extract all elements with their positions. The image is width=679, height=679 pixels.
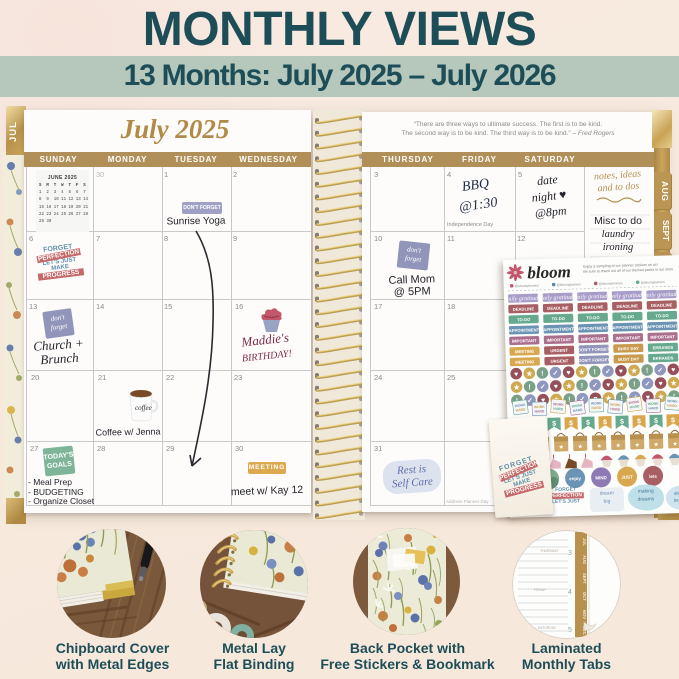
svg-text:daily gratitude: daily gratitude	[574, 294, 610, 301]
svg-text:!: !	[594, 369, 597, 376]
svg-text:HARD: HARD	[648, 406, 658, 410]
svg-text:TO-DO: TO-DO	[517, 317, 531, 322]
svg-text:SEPT: SEPT	[582, 573, 587, 584]
svg-text:29: 29	[166, 444, 174, 453]
svg-text:★: ★	[566, 382, 573, 390]
svg-text:DEADLINE: DEADLINE	[513, 306, 535, 312]
svg-text:20: 20	[31, 373, 39, 382]
svg-text:♥: ♥	[658, 381, 662, 388]
svg-text:HARD: HARD	[534, 409, 544, 413]
svg-text:HARD: HARD	[667, 403, 678, 408]
svg-text:★: ★	[578, 368, 585, 376]
svg-text:IMPORTANT: IMPORTANT	[616, 335, 641, 341]
svg-text:URGENT: URGENT	[550, 348, 568, 354]
svg-text:daily gratitude: daily gratitude	[644, 292, 679, 299]
svg-text:10: 10	[374, 234, 382, 243]
svg-text:OCT: OCT	[582, 592, 587, 601]
svg-text:!: !	[528, 384, 531, 391]
svg-text:FRIDAY: FRIDAY	[534, 588, 547, 592]
svg-text:@bloomplanners: @bloomplanners	[641, 280, 666, 285]
svg-text:★: ★	[631, 367, 638, 375]
svg-text:★: ★	[670, 379, 677, 387]
svg-text:25: 25	[447, 373, 455, 382]
svg-text:TO-DO: TO-DO	[551, 316, 565, 321]
svg-text:8: 8	[164, 234, 168, 243]
svg-text:★: ★	[513, 384, 520, 392]
svg-text:coffee: coffee	[135, 404, 152, 412]
svg-text:★: ★	[634, 442, 640, 449]
svg-text:AUG: AUG	[582, 555, 587, 564]
svg-text:7: 7	[96, 234, 100, 243]
svg-text:4: 4	[447, 170, 451, 179]
svg-text:MEETING: MEETING	[515, 359, 534, 365]
svg-text:TO-DO: TO-DO	[621, 314, 635, 319]
svg-text:MIND: MIND	[595, 475, 607, 480]
svg-text:$: $	[603, 419, 607, 426]
svg-text:24: 24	[374, 373, 382, 382]
svg-text:daily gratitude: daily gratitude	[540, 295, 576, 302]
svg-text:31: 31	[374, 444, 382, 453]
svg-text:17: 17	[374, 302, 382, 311]
svg-text:★: ★	[618, 381, 625, 389]
svg-text:DON'T FORGET: DON'T FORGET	[578, 347, 610, 353]
svg-text:✓: ✓	[540, 384, 546, 391]
svg-text:16: 16	[235, 302, 243, 311]
svg-text:2: 2	[233, 170, 237, 179]
svg-text:$: $	[671, 417, 675, 424]
svg-text:TO-DO: TO-DO	[655, 313, 669, 318]
svg-text:ERRANDS: ERRANDS	[652, 345, 673, 351]
svg-text:NOV: NOV	[582, 610, 587, 619]
svg-text:DEADLINE: DEADLINE	[616, 303, 638, 309]
svg-text:♥: ♥	[671, 367, 675, 374]
svg-text:22: 22	[166, 373, 174, 382]
svg-text:✓: ✓	[592, 382, 598, 389]
svg-text:ERRANDS: ERRANDS	[653, 355, 674, 361]
svg-text:✓: ✓	[552, 370, 558, 377]
svg-text:$: $	[637, 418, 641, 425]
svg-text:TO-DO: TO-DO	[586, 315, 600, 320]
svg-text:HARD: HARD	[591, 406, 601, 410]
svg-text:30: 30	[235, 444, 243, 453]
svg-text:@bloomplanners: @bloomplanners	[515, 283, 540, 288]
svg-text:★: ★	[615, 442, 621, 449]
svg-text:bloom: bloom	[527, 262, 571, 282]
svg-text:HARD: HARD	[553, 407, 564, 412]
svg-text:BUSY DAY: BUSY DAY	[618, 356, 640, 362]
svg-text:MEETING: MEETING	[515, 349, 534, 355]
svg-text:URGENT: URGENT	[551, 358, 569, 364]
svg-text:DON'T FORGET: DON'T FORGET	[578, 357, 610, 363]
svg-text:$: $	[654, 418, 658, 425]
svg-text:JUST: JUST	[621, 474, 633, 479]
svg-text:♥: ♥	[619, 368, 623, 375]
svg-text:$: $	[620, 419, 624, 426]
svg-text:4: 4	[568, 589, 572, 596]
svg-text:12: 12	[517, 234, 525, 243]
svg-text:@bloomplanners: @bloomplanners	[599, 281, 624, 286]
svg-text:27: 27	[30, 444, 38, 453]
svg-text:5: 5	[568, 627, 572, 634]
svg-text:21: 21	[98, 373, 106, 382]
svg-text:13: 13	[29, 302, 37, 311]
svg-text:✓: ✓	[657, 367, 663, 374]
svg-text:$: $	[586, 420, 590, 427]
svg-text:$: $	[569, 420, 573, 427]
svg-text:✓: ✓	[644, 381, 650, 388]
svg-text:IMPORTANT: IMPORTANT	[512, 338, 537, 344]
svg-text:!: !	[646, 368, 649, 375]
svg-text:!: !	[581, 383, 584, 390]
svg-text:daily gratitude: daily gratitude	[505, 296, 541, 303]
svg-text:♥: ♥	[606, 382, 610, 389]
svg-text:DEADLINE: DEADLINE	[547, 305, 569, 311]
svg-text:DEADLINE: DEADLINE	[582, 304, 604, 310]
svg-text:★: ★	[558, 444, 564, 451]
svg-text:THURSDAY: THURSDAY	[540, 549, 559, 553]
svg-text:♥: ♥	[566, 370, 570, 377]
svg-text:11: 11	[447, 234, 455, 243]
svg-text:!: !	[633, 381, 636, 388]
svg-text:1: 1	[164, 170, 168, 179]
svg-text:JUL: JUL	[582, 538, 587, 546]
svg-text:daily gratitude: daily gratitude	[609, 293, 645, 300]
svg-text:SATURDAY: SATURDAY	[538, 626, 557, 630]
svg-text:9: 9	[233, 234, 237, 243]
svg-text:14: 14	[96, 302, 104, 311]
svg-text:BUSY DAY: BUSY DAY	[618, 346, 640, 352]
svg-text:6: 6	[29, 234, 33, 243]
svg-text:APPOINTMENT: APPOINTMENT	[612, 324, 643, 330]
svg-text:15: 15	[164, 302, 172, 311]
svg-text:DEADLINE: DEADLINE	[651, 302, 673, 308]
svg-text:IMPORTANT: IMPORTANT	[546, 337, 571, 343]
svg-text:★: ★	[596, 443, 602, 450]
svg-text:30: 30	[96, 170, 104, 179]
svg-text:HARD: HARD	[610, 407, 621, 412]
svg-text:23: 23	[234, 373, 242, 382]
svg-text:APPOINTMENT: APPOINTMENT	[578, 325, 609, 331]
svg-text:3: 3	[374, 170, 378, 179]
svg-text:28: 28	[97, 444, 105, 453]
svg-text:♥: ♥	[554, 384, 558, 391]
svg-text:IMPORTANT: IMPORTANT	[650, 334, 675, 340]
svg-text:IMPORTANT: IMPORTANT	[581, 336, 606, 342]
svg-text:APPOINTMENT: APPOINTMENT	[509, 327, 540, 333]
svg-text:★: ★	[672, 441, 678, 448]
svg-text:18: 18	[447, 302, 455, 311]
svg-text:lets: lets	[649, 474, 657, 479]
svg-text:@bloomplanners: @bloomplanners	[557, 282, 582, 287]
svg-text:✓: ✓	[605, 369, 611, 376]
svg-text:APPOINTMENT: APPOINTMENT	[647, 323, 678, 329]
svg-text:★: ★	[653, 441, 659, 448]
svg-text:♥: ♥	[514, 371, 518, 378]
svg-text:!: !	[541, 371, 544, 378]
svg-text:Independence Day: Independence Day	[447, 222, 493, 228]
svg-text:★: ★	[526, 370, 533, 378]
svg-text:$: $	[552, 421, 556, 428]
svg-text:enjoy: enjoy	[569, 476, 581, 481]
svg-text:★: ★	[577, 443, 583, 450]
svg-text:APPOINTMENT: APPOINTMENT	[543, 326, 574, 332]
svg-text:3: 3	[568, 550, 572, 557]
